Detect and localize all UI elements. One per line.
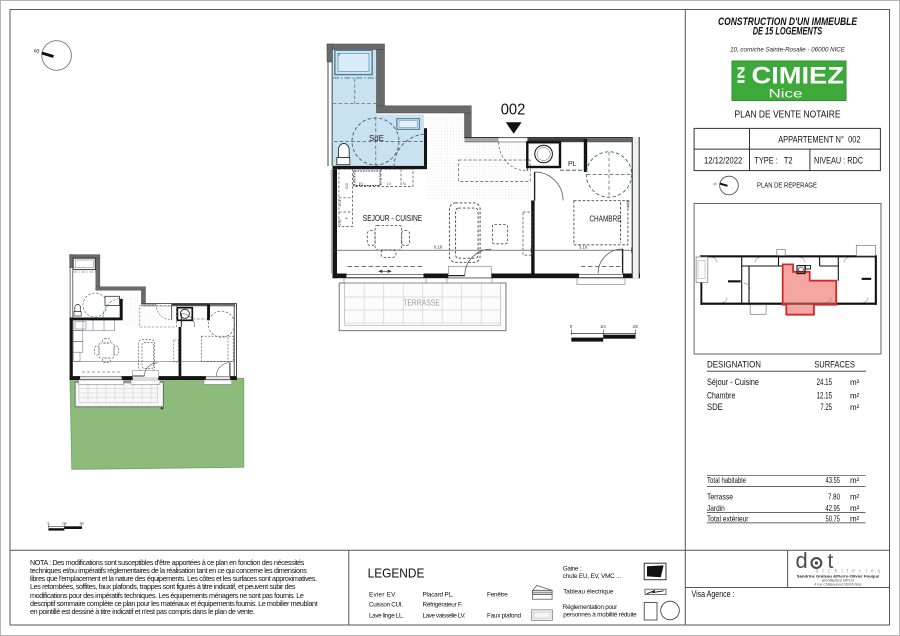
svg-text:CHAMBRE: CHAMBRE xyxy=(589,214,621,223)
svg-text:Lave vaisselle LV.: Lave vaisselle LV. xyxy=(423,612,466,619)
svg-text:CIMIEZ: CIMIEZ xyxy=(752,63,844,90)
svg-text:42.95: 42.95 xyxy=(826,503,841,513)
svg-text:Tableau électrique: Tableau électrique xyxy=(563,589,614,596)
svg-text:Lave linge LL.: Lave linge LL. xyxy=(369,612,404,619)
svg-text:DE 15 LOGEMENTS: DE 15 LOGEMENTS xyxy=(753,26,823,38)
svg-text:LEGENDE: LEGENDE xyxy=(368,567,425,581)
svg-text:10, corniche Sainte-Rosalie -: 10, corniche Sainte-Rosalie - 06000 NICE xyxy=(730,47,845,54)
svg-text:Evier EV.: Evier EV. xyxy=(369,591,397,598)
svg-text:Total extérieur: Total extérieur xyxy=(707,513,749,523)
svg-text:1m: 1m xyxy=(600,324,606,329)
svg-text:m²: m² xyxy=(850,378,860,387)
svg-text:Nice: Nice xyxy=(769,89,803,101)
svg-text:Total habitable: Total habitable xyxy=(707,475,746,485)
svg-text:7.25: 7.25 xyxy=(820,402,832,412)
svg-text:m²: m² xyxy=(850,476,860,485)
svg-text:chute EU, EV, VMC ...: chute EU, EV, VMC ... xyxy=(563,573,621,580)
svg-text:d: d xyxy=(796,548,808,573)
svg-text:SEJOUR - CUISINE: SEJOUR - CUISINE xyxy=(363,214,422,223)
svg-text:LV: LV xyxy=(387,182,392,186)
svg-text:To: To xyxy=(403,182,407,186)
svg-text:DESIGNATION: DESIGNATION xyxy=(707,360,761,370)
svg-text:IN: IN xyxy=(736,66,748,84)
svg-text:m²: m² xyxy=(850,392,860,401)
svg-text:Placard PL.: Placard PL. xyxy=(423,591,454,598)
svg-text:SdE: SdE xyxy=(369,134,384,143)
svg-text:Fenêtre: Fenêtre xyxy=(487,591,508,598)
svg-text:Faux plafond: Faux plafond xyxy=(487,612,521,619)
svg-text:Jardin: Jardin xyxy=(707,503,725,513)
svg-text:Réglementation pour: Réglementation pour xyxy=(563,604,617,611)
svg-text:m²: m² xyxy=(850,403,860,412)
svg-text:SDE: SDE xyxy=(707,402,723,412)
svg-text:NIVEAU : RDC: NIVEAU : RDC xyxy=(814,155,863,166)
svg-text:architectes: architectes xyxy=(816,568,881,574)
svg-text:CUI: CUI xyxy=(345,183,349,189)
svg-text:personnes à mobilité réduite: personnes à mobilité réduite xyxy=(563,612,637,619)
svg-text:7.80: 7.80 xyxy=(828,492,840,502)
svg-text:43.55: 43.55 xyxy=(826,475,841,485)
svg-text:m²: m² xyxy=(850,493,860,502)
svg-text:PL: PL xyxy=(568,161,577,168)
svg-text:SURFACES: SURFACES xyxy=(814,360,855,370)
svg-text:EV: EV xyxy=(359,182,364,186)
svg-text:S: S xyxy=(712,182,718,187)
svg-text:4 rue Châteauneuf 06000 Nice: 4 rue Châteauneuf 06000 Nice xyxy=(815,582,862,586)
svg-text:Visa Agence :: Visa Agence : xyxy=(692,589,735,599)
svg-text:3.16: 3.16 xyxy=(579,245,588,250)
svg-text:m²: m² xyxy=(850,504,860,513)
svg-text:Réfrigérateur F.: Réfrigérateur F. xyxy=(423,602,463,609)
svg-text:12.15: 12.15 xyxy=(817,391,832,401)
svg-text:Terrasse: Terrasse xyxy=(707,492,733,502)
svg-text:0: 0 xyxy=(570,324,573,329)
svg-text:m²: m² xyxy=(850,514,860,523)
svg-text:24.15: 24.15 xyxy=(817,377,832,387)
svg-text:Gaine :: Gaine : xyxy=(563,566,582,573)
svg-text:Cuisson CUI.: Cuisson CUI. xyxy=(369,602,403,609)
svg-text:Chambre: Chambre xyxy=(707,391,735,401)
svg-text:S: S xyxy=(33,48,41,55)
svg-text:PLAN DE REPERAGE: PLAN DE REPERAGE xyxy=(757,181,817,190)
svg-text:TERRASSE: TERRASSE xyxy=(403,299,440,308)
svg-text:2m: 2m xyxy=(633,324,639,329)
svg-text:APPARTEMENT N° 002: APPARTEMENT N° 002 xyxy=(778,134,860,145)
svg-text:PLAN DE VENTE NOTAIRE: PLAN DE VENTE NOTAIRE xyxy=(735,109,841,120)
svg-text:50.75: 50.75 xyxy=(826,513,841,523)
svg-text:Séjour - Cuisine: Séjour - Cuisine xyxy=(707,377,759,387)
svg-text:6.18: 6.18 xyxy=(434,245,443,250)
svg-text:12/12/2022: 12/12/2022 xyxy=(704,155,742,166)
svg-text:002: 002 xyxy=(501,102,526,119)
svg-text:TYPE : T2: TYPE : T2 xyxy=(754,155,792,166)
svg-text:F: F xyxy=(345,217,349,219)
